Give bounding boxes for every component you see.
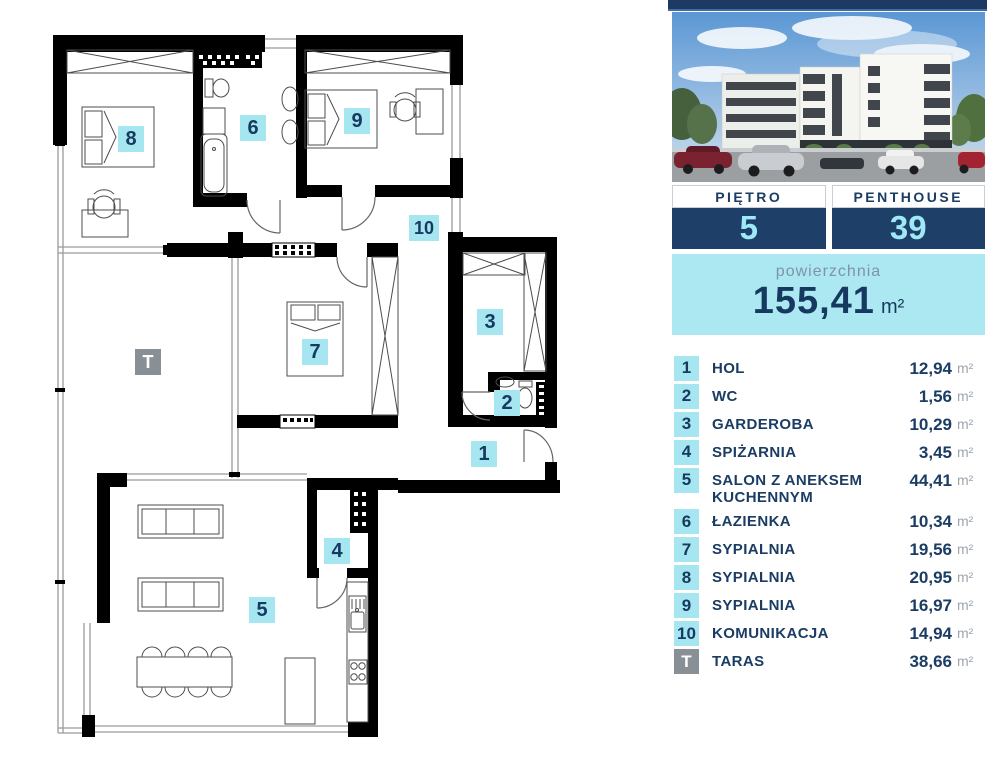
panel-top-bar xyxy=(668,0,987,11)
room-name: SPIŻARNIA xyxy=(712,440,796,461)
room-area-unit: m² xyxy=(957,356,985,376)
floor-plan: 12345678910T xyxy=(0,0,660,768)
room-area-value: 12,94 xyxy=(909,356,952,379)
legend-row-10: 10KOMUNIKACJA14,94m² xyxy=(674,621,985,646)
room-number-badge: 10 xyxy=(674,621,699,646)
room-number-badge: 6 xyxy=(674,509,699,534)
room-area-unit: m² xyxy=(957,384,985,404)
room-name: SYPIALNIA xyxy=(712,537,796,558)
info-panel: PIĘTRO 5 PENTHOUSE 39 powierzchnia 155,4… xyxy=(668,0,987,768)
unit-type-label: PENTHOUSE xyxy=(832,185,986,208)
room-name: ŁAZIENKA xyxy=(712,509,791,530)
plan-room-badge-3: 3 xyxy=(477,309,503,335)
floor-label: PIĘTRO xyxy=(672,185,826,208)
legend-row-6: 6ŁAZIENKA10,34m² xyxy=(674,509,985,534)
plan-room-badge-2: 2 xyxy=(494,390,520,416)
room-area-value: 16,97 xyxy=(909,593,952,616)
plan-room-badge-8: 8 xyxy=(118,126,144,152)
room-name: TARAS xyxy=(712,649,765,670)
room-legend: 1HOL12,94m²2WC1,56m²3GARDEROBA10,29m²4SP… xyxy=(674,356,985,675)
room-area-value: 10,29 xyxy=(909,412,952,435)
floor-unit-boxes: PIĘTRO 5 PENTHOUSE 39 xyxy=(672,185,985,249)
room-name: SALON Z ANEKSEM KUCHENNYM xyxy=(712,468,872,507)
room-area-unit: m² xyxy=(957,509,985,529)
room-area-value: 44,41 xyxy=(909,468,952,491)
room-name: WC xyxy=(712,384,738,405)
room-area-value: 3,45 xyxy=(919,440,952,463)
room-area-value: 19,56 xyxy=(909,537,952,560)
legend-row-4: 4SPIŻARNIA3,45m² xyxy=(674,440,985,465)
room-area-unit: m² xyxy=(957,565,985,585)
room-number-badge: 7 xyxy=(674,537,699,562)
legend-row-8: 8SYPIALNIA20,95m² xyxy=(674,565,985,590)
plan-room-badge-6: 6 xyxy=(240,115,266,141)
area-label: powierzchnia xyxy=(672,263,985,281)
room-area-value: 1,56 xyxy=(919,384,952,407)
radiator-grills xyxy=(272,243,315,428)
plan-room-badge-9: 9 xyxy=(344,108,370,134)
room-number-badge: 5 xyxy=(674,468,699,493)
room-number-badge: 9 xyxy=(674,593,699,618)
room-area-unit: m² xyxy=(957,649,985,669)
plan-room-badge-7: 7 xyxy=(302,339,328,365)
legend-row-7: 7SYPIALNIA19,56m² xyxy=(674,537,985,562)
room-name: HOL xyxy=(712,356,745,377)
room-area-value: 14,94 xyxy=(909,621,952,644)
room-number-badge: 8 xyxy=(674,565,699,590)
legend-row-2: 2WC1,56m² xyxy=(674,384,985,409)
plan-room-badge-1: 1 xyxy=(471,441,497,467)
plan-room-badge-5: 5 xyxy=(249,597,275,623)
total-area-unit: m² xyxy=(881,296,904,318)
room-area-unit: m² xyxy=(957,412,985,432)
plan-room-badge-T: T xyxy=(135,349,161,375)
room-area-value: 20,95 xyxy=(909,565,952,588)
legend-row-5: 5SALON Z ANEKSEM KUCHENNYM44,41m² xyxy=(674,468,985,507)
room-name: SYPIALNIA xyxy=(712,593,796,614)
room-number-badge: T xyxy=(674,649,699,674)
legend-row-T: TTARAS38,66m² xyxy=(674,649,985,674)
unit-number: 39 xyxy=(832,208,986,249)
room-area-value: 38,66 xyxy=(909,649,952,672)
room-name: KOMUNIKACJA xyxy=(712,621,829,642)
room-area-unit: m² xyxy=(957,440,985,460)
floor-box: PIĘTRO 5 xyxy=(672,185,826,249)
room-name: GARDEROBA xyxy=(712,412,814,433)
legend-row-9: 9SYPIALNIA16,97m² xyxy=(674,593,985,618)
room-area-unit: m² xyxy=(957,593,985,613)
total-area-box: powierzchnia 155,41m² xyxy=(672,254,985,335)
room-name: SYPIALNIA xyxy=(712,565,796,586)
room-number-badge: 2 xyxy=(674,384,699,409)
floor-plan-drawing xyxy=(0,0,660,768)
building-photo xyxy=(672,12,985,182)
room-number-badge: 3 xyxy=(674,412,699,437)
legend-row-1: 1HOL12,94m² xyxy=(674,356,985,381)
unit-box: PENTHOUSE 39 xyxy=(832,185,986,249)
room-area-unit: m² xyxy=(957,621,985,641)
plan-room-badge-4: 4 xyxy=(324,538,350,564)
room-area-value: 10,34 xyxy=(909,509,952,532)
room-number-badge: 1 xyxy=(674,356,699,381)
total-area-value: 155,41 xyxy=(753,280,875,322)
room-area-unit: m² xyxy=(957,468,985,488)
floor-number: 5 xyxy=(672,208,826,249)
plan-room-badge-10: 10 xyxy=(409,215,439,241)
room-area-unit: m² xyxy=(957,537,985,557)
legend-row-3: 3GARDEROBA10,29m² xyxy=(674,412,985,437)
room-number-badge: 4 xyxy=(674,440,699,465)
